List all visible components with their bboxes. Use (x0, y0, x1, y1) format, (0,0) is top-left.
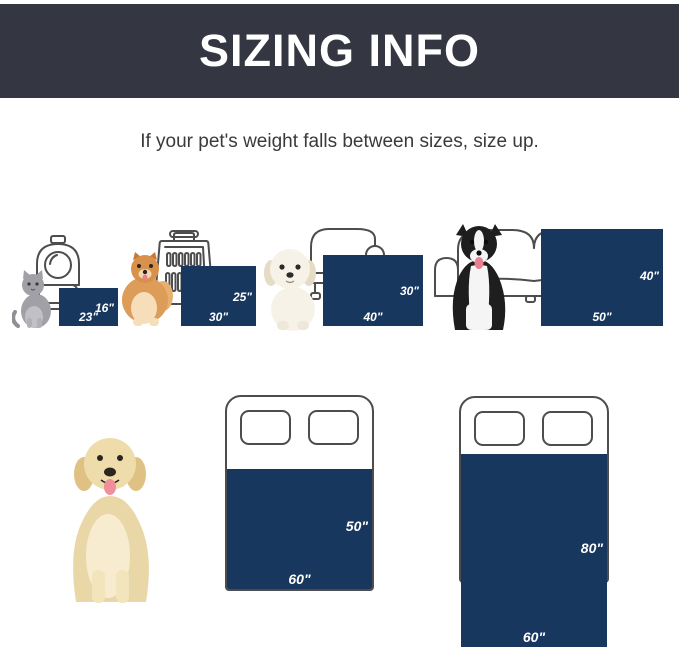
bed-outline-60x50: 50" 60" (225, 395, 374, 591)
height-label-40x30: 30" (400, 285, 419, 297)
border-collie-illustration (441, 218, 517, 330)
blanket-swatch-40x30: 30" 40" (323, 255, 423, 326)
width-label-60x50: 60" (288, 572, 310, 586)
height-label-50x40: 40" (640, 270, 659, 282)
blanket-swatch-60x50: 50" 60" (227, 469, 372, 589)
sizing-info-panel: SIZING INFO If your pet's weight falls b… (0, 0, 679, 651)
width-label-60x80: 60" (523, 630, 545, 644)
height-label-30x25: 25" (233, 291, 252, 303)
width-label-30x25: 30" (209, 311, 228, 323)
golden-retriever-illustration (62, 430, 162, 605)
blanket-swatch-60x80: 80" 60" (461, 454, 607, 647)
blanket-swatch-50x40: 40" 50" (541, 229, 663, 326)
cat-illustration (12, 270, 56, 328)
pomeranian-illustration (119, 250, 173, 328)
blanket-swatch-30x25: 25" 30" (181, 266, 256, 326)
height-label-60x80: 80" (581, 541, 603, 555)
subtitle: If your pet's weight falls between sizes… (0, 131, 679, 153)
height-label-60x50: 50" (346, 519, 368, 533)
header-banner: SIZING INFO (0, 4, 679, 98)
blanket-swatch-23x16: 16" 23" (59, 288, 118, 326)
width-label-23x16: 23" (79, 311, 98, 323)
puppy-illustration (263, 245, 325, 331)
page-title: SIZING INFO (199, 25, 480, 77)
pillow (240, 410, 291, 445)
width-label-40x30: 40" (363, 311, 382, 323)
pillow (474, 411, 525, 446)
width-label-50x40: 50" (592, 311, 611, 323)
pillow (308, 410, 359, 445)
pillow (542, 411, 593, 446)
